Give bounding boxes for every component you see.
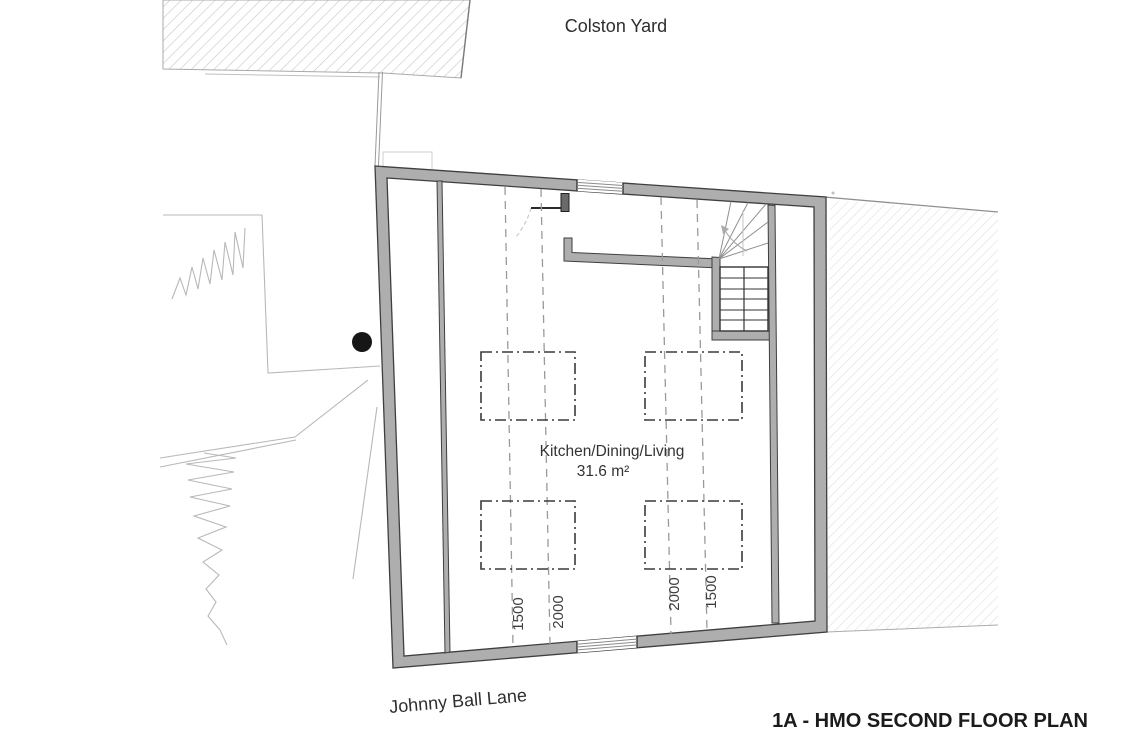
floor-plan-svg: Colston Yard Johnny Ball Lane Kitchen/Di…: [0, 0, 1140, 756]
dimension-label: 2000: [666, 577, 683, 610]
staircase: [719, 202, 768, 332]
adjacent-building-right: [824, 192, 998, 633]
stair-treads: [720, 267, 768, 331]
dimension-label: 1500: [703, 575, 720, 608]
room-area-label: 31.6 m²: [577, 463, 630, 480]
table-outline: [645, 501, 742, 569]
adjacent-building-top-left: [163, 0, 470, 171]
stairwell-right-wall: [768, 205, 779, 623]
site-survey-lines: [160, 215, 380, 645]
landing-wall: [564, 238, 719, 268]
site-boundary-line: [163, 215, 380, 373]
furniture-tables: [481, 352, 742, 569]
table-outline: [481, 352, 575, 420]
table-outline: [481, 501, 575, 569]
drawing-title: 1A - HMO SECOND FLOOR PLAN: [772, 710, 1088, 732]
door-jamb: [561, 194, 569, 212]
street-label-bottom: Johnny Ball Lane: [388, 685, 527, 717]
table-outline: [645, 352, 742, 420]
stair-left-wall: [712, 257, 720, 332]
door-swing-arc: [516, 208, 531, 237]
room-name-label: Kitchen/Dining/Living: [540, 443, 685, 460]
corridor-partition-wall: [437, 181, 450, 653]
survey-marker-dot: [352, 332, 372, 352]
windows: [577, 180, 637, 653]
floor-plan-canvas: Colston Yard Johnny Ball Lane Kitchen/Di…: [0, 0, 1140, 756]
dimension-label: 1500: [510, 597, 527, 630]
stair-bottom-wall: [712, 331, 770, 340]
contour-squiggle-upper: [172, 228, 245, 299]
street-label-top: Colston Yard: [565, 16, 667, 36]
interior-walls: [437, 181, 779, 653]
contour-squiggle-lower: [186, 453, 236, 645]
door: [516, 194, 569, 238]
boundary-line: [375, 72, 379, 166]
dimension-label: 2000: [550, 595, 567, 628]
